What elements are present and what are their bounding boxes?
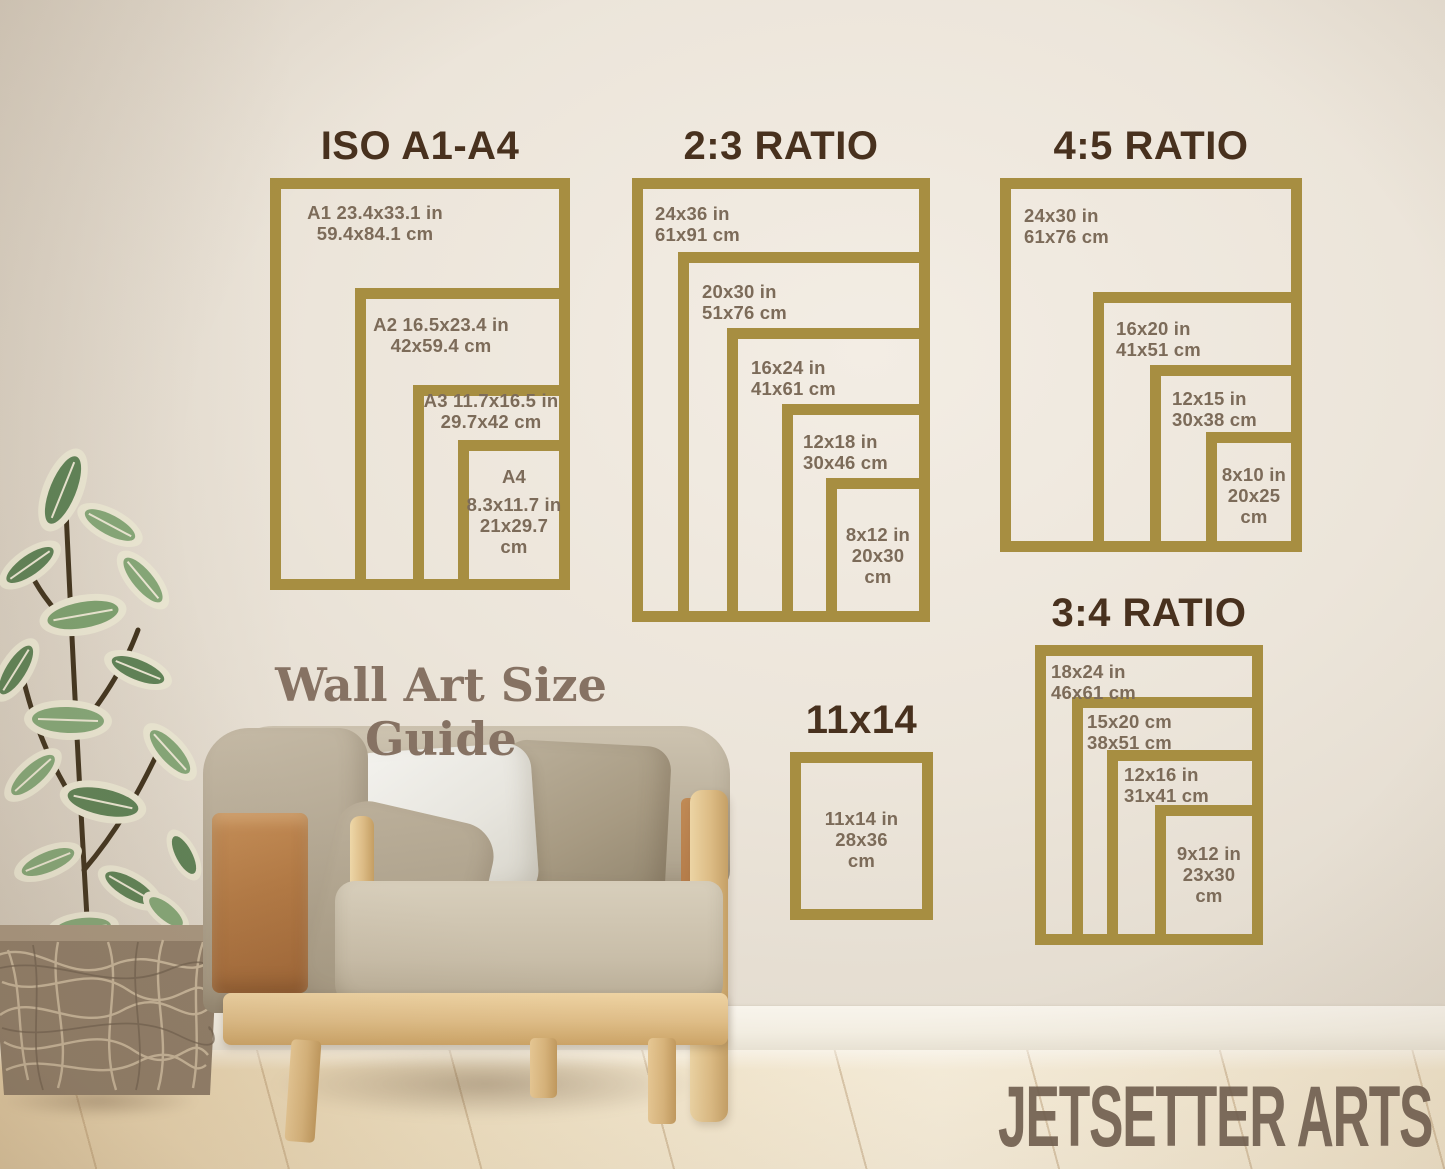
brand-watermark: JETSETTER ARTS [998, 1068, 1432, 1167]
frame-label: 20x30 in 51x76 cm [702, 281, 787, 323]
chair-leather-panel [212, 813, 308, 993]
size-group-iso: ISO A1-A4 A1 23.4x33.1 in 59.4x84.1 cm A… [270, 178, 570, 590]
frame-label: 12x16 in 31x41 cm [1124, 764, 1209, 806]
frame-label: 16x20 in 41x51 cm [1116, 318, 1201, 360]
group-title: ISO A1-A4 [270, 124, 570, 169]
group-title: 11x14 [790, 698, 933, 743]
frame-label: 12x15 in 30x38 cm [1172, 388, 1257, 430]
group-title: 4:5 RATIO [1000, 124, 1302, 169]
frame-label: 11x14 in 28x36 cm [790, 808, 933, 871]
frame-label: A3 11.7x16.5 in 29.7x42 cm [416, 390, 566, 432]
size-group-11x14: 11x14 11x14 in 28x36 cm [790, 752, 933, 920]
frame-label: 24x36 in 61x91 cm [655, 203, 740, 245]
chair-leg [284, 1039, 321, 1143]
frame-label: 12x18 in 30x46 cm [803, 431, 888, 473]
frame-label: A1 23.4x33.1 in 59.4x84.1 cm [290, 202, 460, 244]
size-group-4-5: 4:5 RATIO 24x30 in 61x76 cm 16x20 in 41x… [1000, 178, 1302, 552]
size-group-2-3: 2:3 RATIO 24x36 in 61x91 cm 20x30 in 51x… [632, 178, 930, 622]
frame-label: A2 16.5x23.4 in 42x59.4 cm [346, 314, 536, 356]
room-scene: ISO A1-A4 A1 23.4x33.1 in 59.4x84.1 cm A… [0, 0, 1445, 1169]
frame-label: 18x24 in 46x61 cm [1051, 661, 1136, 703]
frame-label: 16x24 in 41x61 cm [751, 357, 836, 399]
frame-label: 9x12 in 23x30 cm [1155, 843, 1263, 906]
frame-label: 15x20 cm 38x51 cm [1087, 711, 1172, 753]
group-title: 2:3 RATIO [632, 124, 930, 169]
frame-label: 8x12 in 20x30 cm [826, 524, 930, 587]
size-group-3-4: 3:4 RATIO 18x24 in 46x61 cm 15x20 cm 38x… [1035, 645, 1263, 945]
guide-title: Wall Art Size Guide [236, 658, 646, 766]
frame-label: 8x10 in 20x25 cm [1206, 464, 1302, 527]
frame-label: 24x30 in 61x76 cm [1024, 205, 1109, 247]
armchair [185, 718, 745, 1169]
group-title: 3:4 RATIO [1035, 591, 1263, 636]
chair-leg [530, 1038, 557, 1098]
chair-leg [648, 1038, 676, 1124]
frame-label: A4 8.3x11.7 in 21x29.7 cm [458, 466, 570, 557]
